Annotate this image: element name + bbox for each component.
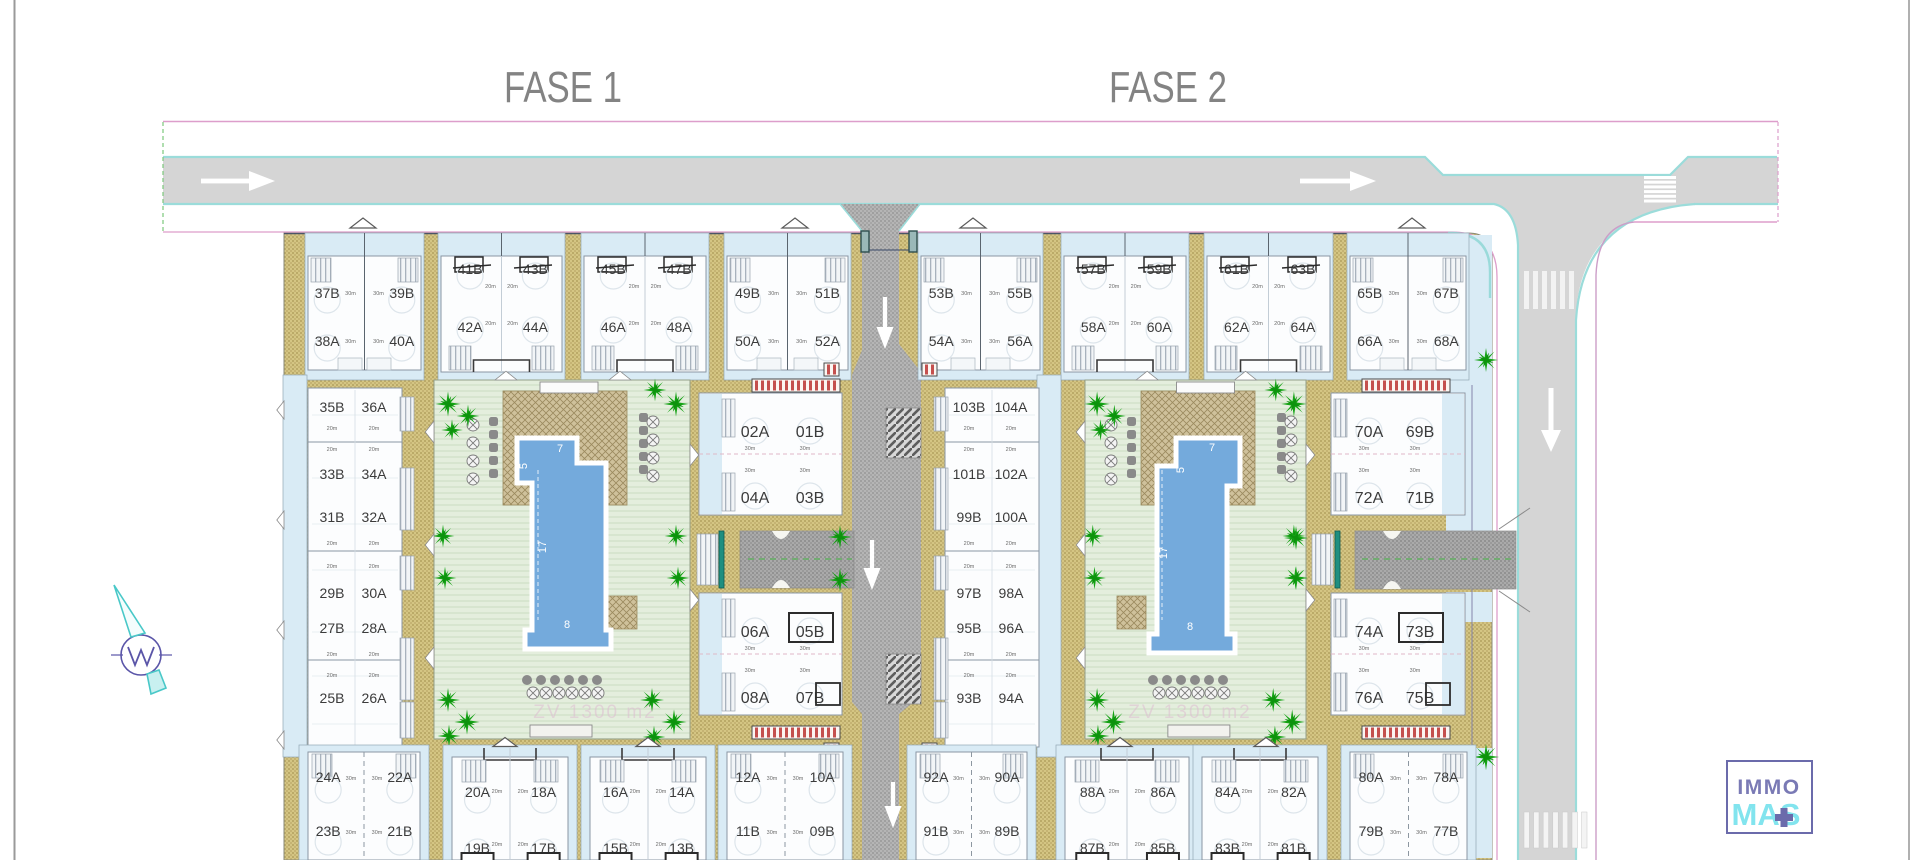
svg-text:30m: 30m (768, 339, 779, 345)
svg-text:20m: 20m (518, 789, 529, 795)
svg-text:100A: 100A (995, 509, 1028, 525)
svg-text:22A: 22A (387, 769, 413, 785)
svg-text:20m: 20m (630, 842, 641, 848)
svg-text:30m: 30m (979, 776, 990, 782)
svg-text:50A: 50A (735, 333, 761, 349)
svg-text:20m: 20m (492, 842, 503, 848)
svg-text:30m: 30m (800, 446, 811, 452)
svg-text:20m: 20m (1006, 564, 1017, 570)
svg-text:11B: 11B (736, 823, 760, 839)
svg-text:76A: 76A (1355, 690, 1384, 707)
svg-text:20m: 20m (1006, 673, 1017, 679)
svg-text:77B: 77B (1433, 823, 1458, 839)
svg-text:20m: 20m (964, 447, 975, 453)
svg-text:61B: 61B (1224, 261, 1249, 277)
svg-text:72A: 72A (1355, 490, 1384, 507)
svg-text:93B: 93B (957, 690, 982, 706)
svg-text:33B: 33B (320, 466, 345, 482)
svg-text:30m: 30m (961, 291, 972, 297)
svg-text:20m: 20m (1135, 789, 1146, 795)
svg-text:74A: 74A (1355, 624, 1384, 641)
svg-text:73B: 73B (1406, 624, 1434, 641)
svg-text:ZV 1300 m2: ZV 1300 m2 (1128, 702, 1252, 723)
svg-text:20m: 20m (369, 426, 380, 432)
svg-text:84A: 84A (1215, 784, 1241, 800)
svg-text:30m: 30m (1390, 830, 1401, 836)
svg-text:20m: 20m (518, 842, 529, 848)
svg-text:20m: 20m (656, 842, 667, 848)
svg-text:30m: 30m (1359, 446, 1370, 452)
svg-text:30m: 30m (346, 776, 357, 782)
svg-text:26A: 26A (362, 690, 388, 706)
svg-text:28A: 28A (362, 620, 388, 636)
svg-text:37B: 37B (315, 285, 340, 301)
svg-text:30m: 30m (1410, 446, 1421, 452)
svg-text:20m: 20m (1252, 284, 1263, 290)
svg-text:30m: 30m (346, 830, 357, 836)
svg-text:41B: 41B (458, 261, 483, 277)
svg-text:23B: 23B (316, 823, 341, 839)
svg-text:54A: 54A (929, 333, 955, 349)
svg-text:20m: 20m (492, 789, 503, 795)
svg-text:20m: 20m (507, 321, 518, 327)
svg-text:92A: 92A (924, 769, 950, 785)
svg-text:04A: 04A (741, 490, 770, 507)
svg-text:21B: 21B (387, 823, 412, 839)
svg-text:5: 5 (518, 463, 530, 469)
svg-text:20m: 20m (1268, 789, 1279, 795)
svg-text:20m: 20m (1268, 842, 1279, 848)
svg-text:45B: 45B (601, 261, 626, 277)
svg-text:27B: 27B (320, 620, 345, 636)
svg-text:39B: 39B (389, 285, 414, 301)
svg-text:30m: 30m (961, 339, 972, 345)
svg-text:20m: 20m (1274, 321, 1285, 327)
svg-text:02A: 02A (741, 424, 770, 441)
svg-text:30m: 30m (1359, 668, 1370, 674)
svg-text:49B: 49B (735, 285, 760, 301)
svg-text:30m: 30m (768, 291, 779, 297)
svg-text:FASE 2: FASE 2 (1109, 63, 1227, 112)
svg-text:20m: 20m (1131, 321, 1142, 327)
svg-text:30m: 30m (800, 468, 811, 474)
svg-text:101B: 101B (953, 466, 986, 482)
svg-text:30m: 30m (800, 668, 811, 674)
svg-text:30m: 30m (989, 291, 1000, 297)
svg-text:20A: 20A (465, 784, 491, 800)
svg-text:20m: 20m (1109, 789, 1120, 795)
svg-text:69B: 69B (1406, 424, 1434, 441)
svg-text:30m: 30m (1359, 468, 1370, 474)
svg-text:FASE 1: FASE 1 (504, 63, 622, 112)
svg-text:46A: 46A (601, 319, 627, 335)
svg-text:55B: 55B (1007, 285, 1032, 301)
svg-text:29B: 29B (320, 585, 345, 601)
svg-text:30m: 30m (796, 291, 807, 297)
svg-text:63B: 63B (1290, 261, 1315, 277)
svg-text:30m: 30m (1389, 339, 1400, 345)
svg-text:70A: 70A (1355, 424, 1384, 441)
svg-text:20m: 20m (630, 789, 641, 795)
svg-text:8: 8 (564, 619, 570, 631)
svg-text:44A: 44A (523, 319, 549, 335)
svg-text:53B: 53B (929, 285, 954, 301)
svg-text:7: 7 (1209, 442, 1215, 454)
svg-text:20m: 20m (1242, 789, 1253, 795)
svg-text:8: 8 (1187, 621, 1193, 633)
svg-text:20m: 20m (964, 426, 975, 432)
svg-text:30m: 30m (745, 468, 756, 474)
svg-text:25B: 25B (320, 690, 345, 706)
svg-text:88A: 88A (1080, 784, 1106, 800)
svg-text:65B: 65B (1357, 285, 1382, 301)
svg-text:30m: 30m (793, 830, 804, 836)
svg-text:30m: 30m (1389, 291, 1400, 297)
svg-text:10A: 10A (810, 769, 836, 785)
svg-text:102A: 102A (995, 466, 1028, 482)
svg-text:57B: 57B (1081, 261, 1106, 277)
svg-text:103B: 103B (953, 399, 986, 415)
svg-text:30m: 30m (1359, 646, 1370, 652)
svg-text:30m: 30m (767, 830, 778, 836)
svg-text:30A: 30A (362, 585, 388, 601)
svg-text:97B: 97B (957, 585, 982, 601)
svg-text:20m: 20m (369, 447, 380, 453)
svg-text:20m: 20m (369, 541, 380, 547)
svg-text:48A: 48A (667, 319, 693, 335)
svg-text:20m: 20m (1006, 541, 1017, 547)
svg-text:7: 7 (557, 443, 563, 455)
svg-text:20m: 20m (1252, 321, 1263, 327)
svg-text:90A: 90A (995, 769, 1021, 785)
svg-text:78A: 78A (1433, 769, 1459, 785)
svg-text:43B: 43B (523, 261, 548, 277)
svg-text:14A: 14A (669, 784, 695, 800)
svg-text:17: 17 (1158, 547, 1170, 559)
svg-text:30m: 30m (1410, 668, 1421, 674)
svg-text:80A: 80A (1359, 769, 1385, 785)
svg-text:16A: 16A (603, 784, 629, 800)
svg-text:08A: 08A (741, 690, 770, 707)
svg-text:60A: 60A (1147, 319, 1173, 335)
svg-text:30m: 30m (989, 339, 1000, 345)
svg-text:06A: 06A (741, 624, 770, 641)
svg-text:20m: 20m (507, 284, 518, 290)
svg-text:71B: 71B (1406, 490, 1434, 507)
svg-text:20m: 20m (651, 321, 662, 327)
svg-text:30m: 30m (1410, 646, 1421, 652)
svg-text:5: 5 (1175, 467, 1187, 473)
svg-text:ZV 1300 m2: ZV 1300 m2 (533, 702, 657, 723)
svg-text:30m: 30m (373, 291, 384, 297)
svg-text:20m: 20m (369, 652, 380, 658)
svg-text:20m: 20m (327, 652, 338, 658)
svg-text:30m: 30m (1416, 830, 1427, 836)
svg-text:86A: 86A (1150, 784, 1176, 800)
svg-text:20m: 20m (327, 564, 338, 570)
svg-text:20m: 20m (629, 321, 640, 327)
svg-text:30m: 30m (953, 776, 964, 782)
svg-text:64A: 64A (1290, 319, 1316, 335)
svg-text:56A: 56A (1007, 333, 1033, 349)
svg-text:98A: 98A (999, 585, 1025, 601)
svg-text:20m: 20m (1274, 284, 1285, 290)
svg-text:30m: 30m (1410, 468, 1421, 474)
svg-text:59B: 59B (1147, 261, 1172, 277)
svg-text:58A: 58A (1081, 319, 1107, 335)
svg-text:66A: 66A (1357, 333, 1383, 349)
svg-text:30m: 30m (345, 339, 356, 345)
svg-text:35B: 35B (320, 399, 345, 415)
svg-text:20m: 20m (1131, 284, 1142, 290)
svg-text:05B: 05B (796, 624, 824, 641)
svg-text:20m: 20m (1242, 842, 1253, 848)
svg-text:30m: 30m (800, 646, 811, 652)
svg-text:30m: 30m (373, 339, 384, 345)
svg-text:20m: 20m (651, 284, 662, 290)
svg-text:30m: 30m (345, 291, 356, 297)
svg-text:20m: 20m (1109, 842, 1120, 848)
svg-text:30m: 30m (1417, 339, 1428, 345)
svg-text:30m: 30m (745, 646, 756, 652)
svg-text:20m: 20m (964, 652, 975, 658)
svg-text:20m: 20m (1109, 321, 1120, 327)
svg-text:IMMO: IMMO (1737, 776, 1800, 799)
svg-text:68A: 68A (1434, 333, 1460, 349)
svg-text:67B: 67B (1434, 285, 1459, 301)
svg-text:104A: 104A (995, 399, 1028, 415)
svg-text:36A: 36A (362, 399, 388, 415)
svg-text:20m: 20m (1135, 842, 1146, 848)
svg-text:62A: 62A (1224, 319, 1250, 335)
svg-text:20m: 20m (327, 673, 338, 679)
svg-text:30m: 30m (372, 776, 383, 782)
svg-text:24A: 24A (316, 769, 342, 785)
svg-text:20m: 20m (485, 284, 496, 290)
svg-text:30m: 30m (745, 668, 756, 674)
svg-text:20m: 20m (369, 673, 380, 679)
svg-text:82A: 82A (1281, 784, 1307, 800)
svg-text:01B: 01B (796, 424, 824, 441)
svg-text:20m: 20m (964, 541, 975, 547)
svg-text:40A: 40A (389, 333, 415, 349)
svg-text:20m: 20m (1109, 284, 1120, 290)
svg-text:52A: 52A (815, 333, 841, 349)
svg-text:34A: 34A (362, 466, 388, 482)
svg-text:20m: 20m (964, 564, 975, 570)
svg-text:31B: 31B (320, 509, 345, 525)
svg-text:20m: 20m (327, 541, 338, 547)
svg-text:99B: 99B (957, 509, 982, 525)
svg-text:30m: 30m (745, 446, 756, 452)
svg-text:42A: 42A (458, 319, 484, 335)
svg-text:47B: 47B (667, 261, 692, 277)
svg-text:20m: 20m (1006, 652, 1017, 658)
svg-text:30m: 30m (1390, 776, 1401, 782)
svg-text:12A: 12A (735, 769, 761, 785)
svg-text:32A: 32A (362, 509, 388, 525)
svg-text:18A: 18A (531, 784, 557, 800)
svg-text:20m: 20m (1006, 447, 1017, 453)
svg-text:94A: 94A (999, 690, 1025, 706)
svg-text:20m: 20m (964, 673, 975, 679)
svg-text:30m: 30m (1416, 776, 1427, 782)
svg-text:30m: 30m (953, 830, 964, 836)
svg-text:30m: 30m (796, 339, 807, 345)
svg-text:95B: 95B (957, 620, 982, 636)
svg-text:17: 17 (537, 541, 549, 553)
svg-text:30m: 30m (793, 776, 804, 782)
svg-text:91B: 91B (924, 823, 949, 839)
svg-text:09B: 09B (810, 823, 835, 839)
svg-text:20m: 20m (629, 284, 640, 290)
svg-text:20m: 20m (369, 564, 380, 570)
svg-text:30m: 30m (767, 776, 778, 782)
svg-text:20m: 20m (327, 447, 338, 453)
svg-text:30m: 30m (1417, 291, 1428, 297)
svg-text:79B: 79B (1359, 823, 1384, 839)
svg-text:03B: 03B (796, 490, 824, 507)
svg-text:20m: 20m (327, 426, 338, 432)
svg-text:30m: 30m (979, 830, 990, 836)
svg-text:51B: 51B (815, 285, 840, 301)
svg-text:20m: 20m (656, 789, 667, 795)
svg-text:38A: 38A (315, 333, 341, 349)
svg-text:30m: 30m (372, 830, 383, 836)
svg-text:89B: 89B (995, 823, 1020, 839)
svg-text:20m: 20m (1006, 426, 1017, 432)
svg-text:20m: 20m (485, 321, 496, 327)
svg-text:96A: 96A (999, 620, 1025, 636)
